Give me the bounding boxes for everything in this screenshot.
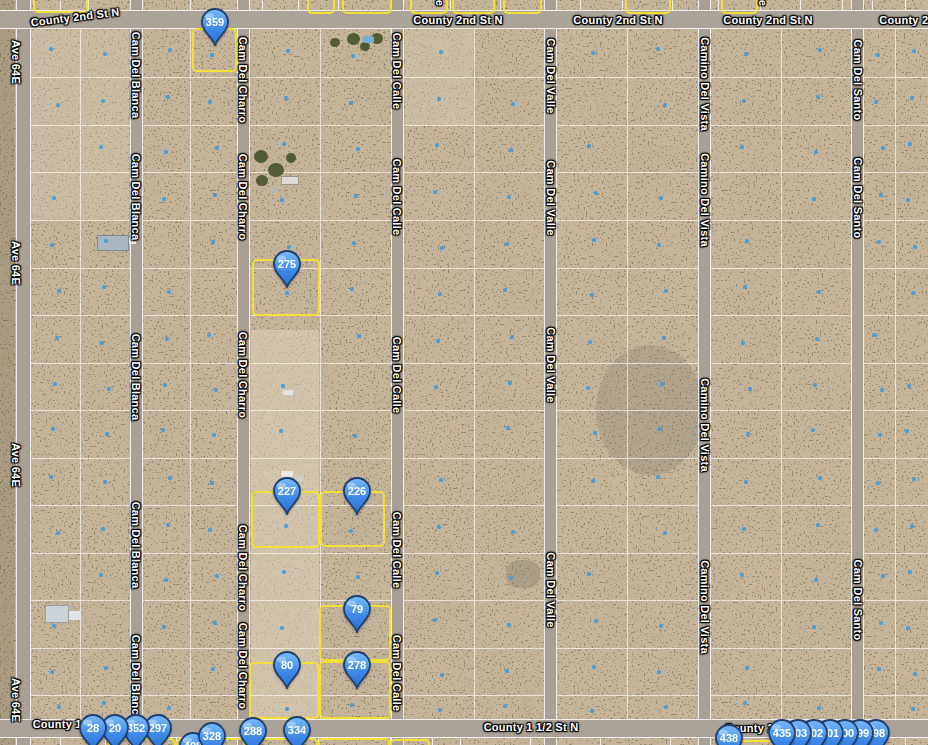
pin-label: 359 xyxy=(206,16,224,28)
map-pin-28[interactable]: 28 xyxy=(78,714,108,745)
map-canvas[interactable]: County 2nd St NCounty 2nd St NCounty 2nd… xyxy=(0,0,928,745)
pin-label: 79 xyxy=(351,603,363,615)
map-pin-438[interactable]: 438 xyxy=(714,724,744,745)
pin-label: 20 xyxy=(109,722,121,734)
map-pin-359[interactable]: 359 xyxy=(200,8,230,46)
map-pins: 3592752272267980278408328297352202828833… xyxy=(0,0,928,745)
pin-label: 28 xyxy=(87,722,99,734)
map-pin-278[interactable]: 278 xyxy=(342,651,372,689)
map-pin-334[interactable]: 334 xyxy=(282,716,312,745)
map-pin-80[interactable]: 80 xyxy=(272,651,302,689)
map-pin-275[interactable]: 275 xyxy=(272,250,302,288)
map-pin-226[interactable]: 226 xyxy=(342,477,372,515)
pin-label: 275 xyxy=(278,258,296,270)
pin-label: 226 xyxy=(348,485,366,497)
pin-label: 435 xyxy=(773,727,791,739)
pin-label: 297 xyxy=(149,722,167,734)
map-pin-328[interactable]: 328 xyxy=(197,722,227,745)
pin-label: 288 xyxy=(244,725,262,737)
map-pin-288[interactable]: 288 xyxy=(238,717,268,745)
pin-label: 334 xyxy=(288,724,307,736)
pin-label: 278 xyxy=(348,659,366,671)
pin-label: 227 xyxy=(278,485,296,497)
pin-label: 438 xyxy=(720,732,738,744)
map-pin-227[interactable]: 227 xyxy=(272,477,302,515)
map-pin-79[interactable]: 79 xyxy=(342,595,372,633)
pin-label: 80 xyxy=(281,659,293,671)
map-pin-435[interactable]: 435 xyxy=(767,719,797,745)
pin-label: 328 xyxy=(203,730,221,742)
